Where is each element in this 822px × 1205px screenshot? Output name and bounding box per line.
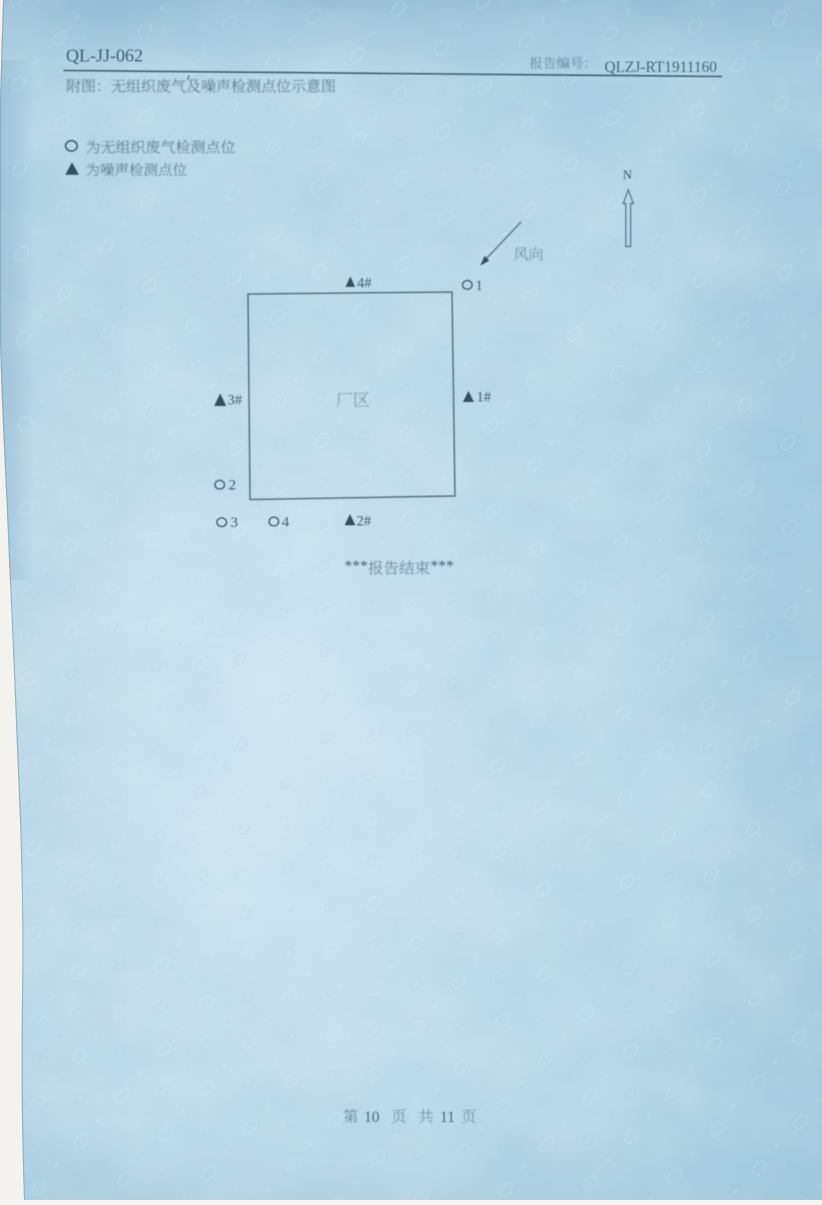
svg-text:2: 2 (229, 478, 237, 494)
svg-text:2#: 2# (357, 514, 372, 530)
svg-text:***: *** (345, 558, 369, 575)
svg-text:1: 1 (476, 278, 483, 294)
svg-text:4: 4 (282, 515, 290, 531)
svg-text:3: 3 (231, 515, 239, 531)
svg-text:QLZJ-RT1911160: QLZJ-RT1911160 (605, 59, 718, 76)
svg-text:4#: 4# (357, 276, 372, 292)
svg-text:1#: 1# (477, 390, 492, 406)
svg-text:N: N (623, 168, 632, 182)
svg-text:11: 11 (440, 1109, 455, 1126)
svg-text:10: 10 (364, 1109, 380, 1126)
svg-text:3#: 3# (228, 393, 243, 409)
svg-text:QL-JJ-062: QL-JJ-062 (66, 46, 143, 66)
svg-text:***: *** (431, 558, 455, 575)
